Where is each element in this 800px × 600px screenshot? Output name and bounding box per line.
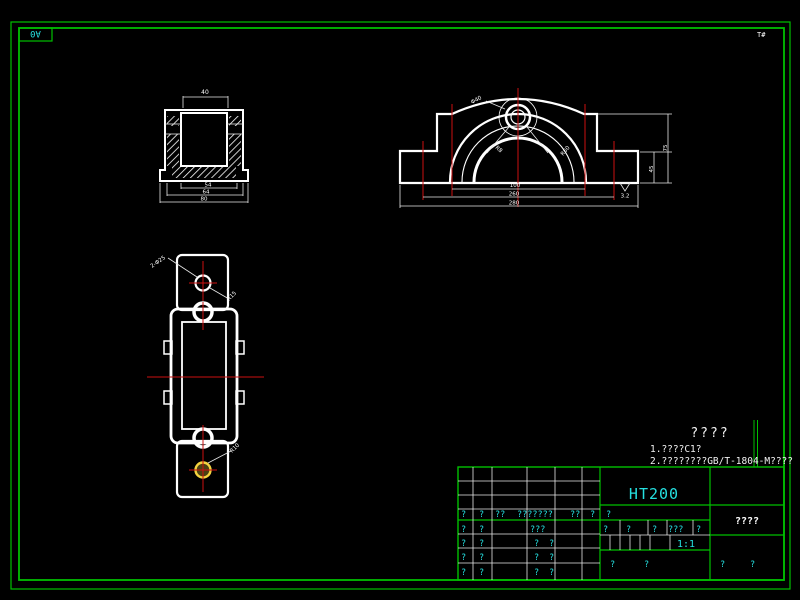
svg-text:?: ? [461, 568, 466, 578]
front-outline [400, 99, 638, 183]
front-view: Φ40 R8 R60 100 260 280 45 75 3.2 [400, 88, 672, 208]
svg-text:?: ? [534, 568, 539, 578]
sheet-size-label: A0 [30, 28, 41, 38]
svg-text:?: ? [479, 510, 484, 520]
svg-text:?: ? [461, 553, 466, 563]
technical-notes: ???? 1.????C1? 2.????????GB/T-1804-M???? [650, 426, 793, 467]
top-label-holes: 2-Φ25 [150, 255, 168, 270]
section-dim-top: 40 [183, 89, 228, 108]
svg-text:100: 100 [510, 183, 521, 189]
top-view-centerlines [147, 261, 264, 492]
section-dim-bottom: 54 64 80 [160, 183, 248, 204]
svg-text:3.2: 3.2 [621, 194, 630, 200]
section-cavity [181, 113, 227, 166]
svg-text:?: ? [549, 553, 554, 563]
svg-text:?: ? [590, 510, 595, 520]
svg-text:?: ? [549, 539, 554, 549]
front-dim-bottom: 100 260 280 [400, 183, 638, 208]
svg-text:?: ? [549, 568, 554, 578]
svg-text:?: ? [603, 525, 608, 535]
notes-line-2: 2.????????GB/T-1804-M???? [650, 456, 793, 467]
svg-text:?: ? [644, 560, 649, 570]
svg-text:?: ? [696, 525, 701, 535]
svg-text:75: 75 [663, 144, 669, 151]
svg-text:?: ? [750, 560, 755, 570]
svg-text:80: 80 [201, 197, 208, 203]
part-name-label: ???? [735, 516, 759, 527]
svg-text:?: ? [461, 539, 466, 549]
body-outline [171, 309, 237, 443]
svg-text:?: ? [479, 553, 484, 563]
svg-text:?: ? [626, 525, 631, 535]
top-view: 2-Φ25 R15 R10 [147, 255, 264, 497]
svg-text:?: ? [479, 525, 484, 535]
svg-text:?: ? [461, 510, 466, 520]
roughness-symbol-icon: 3.2 [620, 183, 630, 200]
section-wall-gap-left [167, 126, 179, 134]
svg-text:?: ? [461, 525, 466, 535]
svg-text:???????: ??????? [517, 510, 553, 520]
section-hatch-right [229, 116, 241, 166]
title-block-header-row: ? ? ?? ??????? ?? ? ? [461, 510, 611, 520]
svg-text:?: ? [479, 568, 484, 578]
svg-text:?: ? [606, 510, 611, 520]
cad-canvas: A0 T# 40 54 64 [0, 0, 800, 600]
title-block-left-grid [458, 467, 600, 580]
front-label-fillet: R8 [494, 145, 504, 155]
svg-text:40: 40 [201, 89, 209, 96]
section-wall-gap-right [229, 126, 241, 134]
notes-line-1: 1.????C1? [650, 444, 701, 455]
corner-mark: T# [757, 31, 766, 39]
svg-text:?: ? [610, 560, 615, 570]
notes-title: ???? [690, 426, 729, 441]
section-view: 40 54 64 80 [160, 89, 248, 203]
svg-text:??: ?? [495, 510, 505, 520]
svg-text:45: 45 [649, 165, 655, 172]
svg-text:54: 54 [205, 183, 212, 189]
svg-text:?: ? [534, 553, 539, 563]
svg-text:?: ? [479, 539, 484, 549]
section-hatch-bottom [172, 166, 236, 178]
svg-text:?: ? [652, 525, 657, 535]
sheet-border-outer [11, 22, 790, 589]
section-hatch-left [167, 116, 179, 166]
front-dim-right: 45 75 [598, 114, 672, 183]
title-block: HT200 ???? 1:1 ? ? ?? ??????? ?? ? ? ? ?… [458, 467, 784, 580]
sheet-border [11, 22, 790, 589]
svg-text:280: 280 [509, 201, 520, 207]
title-block-mid-row: ? ? ? ??? ? [603, 525, 701, 535]
svg-text:??: ?? [570, 510, 580, 520]
svg-text:???: ??? [530, 525, 545, 535]
title-block-bottom-row: ? ? ? ? [610, 560, 755, 570]
svg-text:?: ? [534, 539, 539, 549]
material-label: HT200 [629, 485, 679, 503]
scale-label: 1:1 [677, 539, 695, 550]
sheet-size-box: A0 [19, 28, 52, 41]
body-cavity [182, 322, 226, 429]
title-block-rows: ? ? ??? ? ? ? ? ? ? ? ? ? ? ? ? [461, 525, 554, 578]
svg-text:?: ? [720, 560, 725, 570]
svg-text:???: ??? [668, 525, 683, 535]
svg-text:64: 64 [203, 190, 210, 196]
svg-text:260: 260 [509, 192, 520, 198]
